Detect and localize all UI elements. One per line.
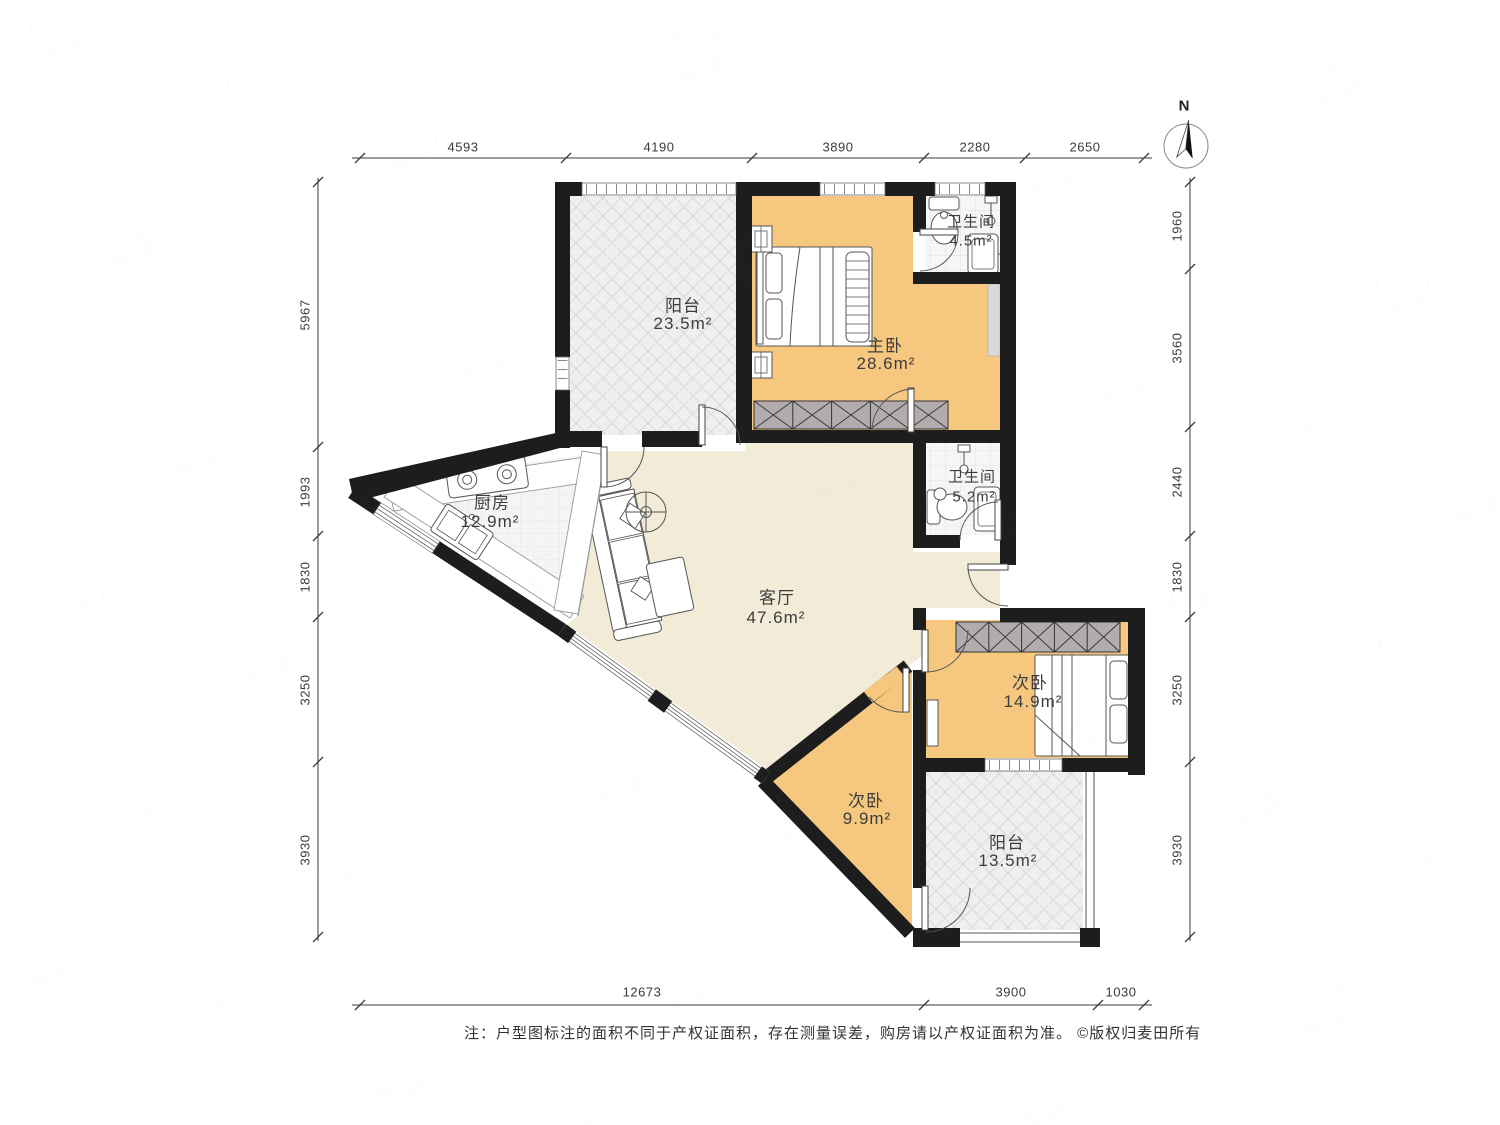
room-area-master: 28.6m² xyxy=(857,354,916,374)
window xyxy=(556,357,569,390)
dim-bottom-0: 12673 xyxy=(623,985,662,1000)
dim-bottom-1: 3900 xyxy=(996,985,1027,1000)
dim-right-5: 3930 xyxy=(1170,835,1185,866)
dim-top-0: 4593 xyxy=(448,140,479,155)
master-niche xyxy=(988,284,1000,356)
wardrobe-icon xyxy=(956,622,1120,652)
disclaimer-note: 注：户型图标注的面积不同于产权证面积，存在测量误差，购房请以产权证面积为准。 ©… xyxy=(464,1022,1201,1043)
balcony-rail xyxy=(1083,772,1097,928)
dim-top-3: 2280 xyxy=(960,140,991,155)
cabinet-icon xyxy=(750,226,772,252)
room-label-master: 主卧 xyxy=(867,332,903,357)
dim-line-right xyxy=(1185,177,1195,942)
side-cabinet-icon xyxy=(927,700,938,746)
room-area-living: 47.6m² xyxy=(747,608,806,628)
floorplan-drawing xyxy=(0,0,1500,1125)
dim-right-4: 3250 xyxy=(1170,675,1185,706)
room-area-bed-right: 14.9m² xyxy=(1004,692,1063,712)
north-arrow-icon xyxy=(1162,118,1211,170)
dim-left-1: 1993 xyxy=(298,477,313,508)
dim-right-3: 1830 xyxy=(1170,562,1185,593)
dim-left-0: 5967 xyxy=(298,300,313,331)
double-bed-icon xyxy=(756,247,872,346)
dim-left-2: 1830 xyxy=(298,562,313,593)
window xyxy=(582,183,736,195)
dim-right-0: 1960 xyxy=(1170,211,1185,242)
dim-left-4: 3930 xyxy=(298,835,313,866)
dim-line-left xyxy=(313,177,323,942)
dim-bottom-2: 1030 xyxy=(1106,985,1137,1000)
window xyxy=(985,759,1062,771)
window xyxy=(820,183,885,195)
room-area-balcony-top: 23.5m² xyxy=(654,314,713,334)
dim-left-3: 3250 xyxy=(298,675,313,706)
dim-right-2: 2440 xyxy=(1170,467,1185,498)
cabinet-icon xyxy=(750,352,772,378)
room-label-living: 客厅 xyxy=(759,584,795,609)
wardrobe-icon xyxy=(754,401,948,429)
room-area-kitchen: 12.9m² xyxy=(461,512,520,532)
floorplan-page: 阳台 23.5m² 主卧 28.6m² 卫生间 4.5m² 卫生间 5.2m² … xyxy=(0,0,1500,1125)
room-label-bath-top: 卫生间 xyxy=(947,211,995,232)
room-label-kitchen: 厨房 xyxy=(474,489,510,514)
room-area-balcony-bottom: 13.5m² xyxy=(979,851,1038,871)
room-area-bath-top: 4.5m² xyxy=(949,233,992,250)
room-label-bed-right: 次卧 xyxy=(1012,669,1048,694)
ceiling-fan-icon xyxy=(626,492,666,532)
dim-line-bottom xyxy=(352,1000,1152,1010)
room-label-balcony-bottom: 阳台 xyxy=(989,829,1025,854)
dim-line-top xyxy=(352,153,1152,163)
north-label: N xyxy=(1179,98,1190,115)
balcony-rail xyxy=(960,931,1080,944)
dim-right-1: 3560 xyxy=(1170,333,1185,364)
room-label-balcony-top: 阳台 xyxy=(665,292,701,317)
dim-top-2: 3890 xyxy=(823,140,854,155)
room-label-bath-mid: 卫生间 xyxy=(948,466,996,487)
room-area-bath-mid: 5.2m² xyxy=(952,489,995,506)
room-area-bed-bottom: 9.9m² xyxy=(843,809,891,829)
dim-top-4: 2650 xyxy=(1070,140,1101,155)
window xyxy=(935,183,985,195)
room-label-bed-bottom: 次卧 xyxy=(848,787,884,812)
dim-top-1: 4190 xyxy=(644,140,675,155)
